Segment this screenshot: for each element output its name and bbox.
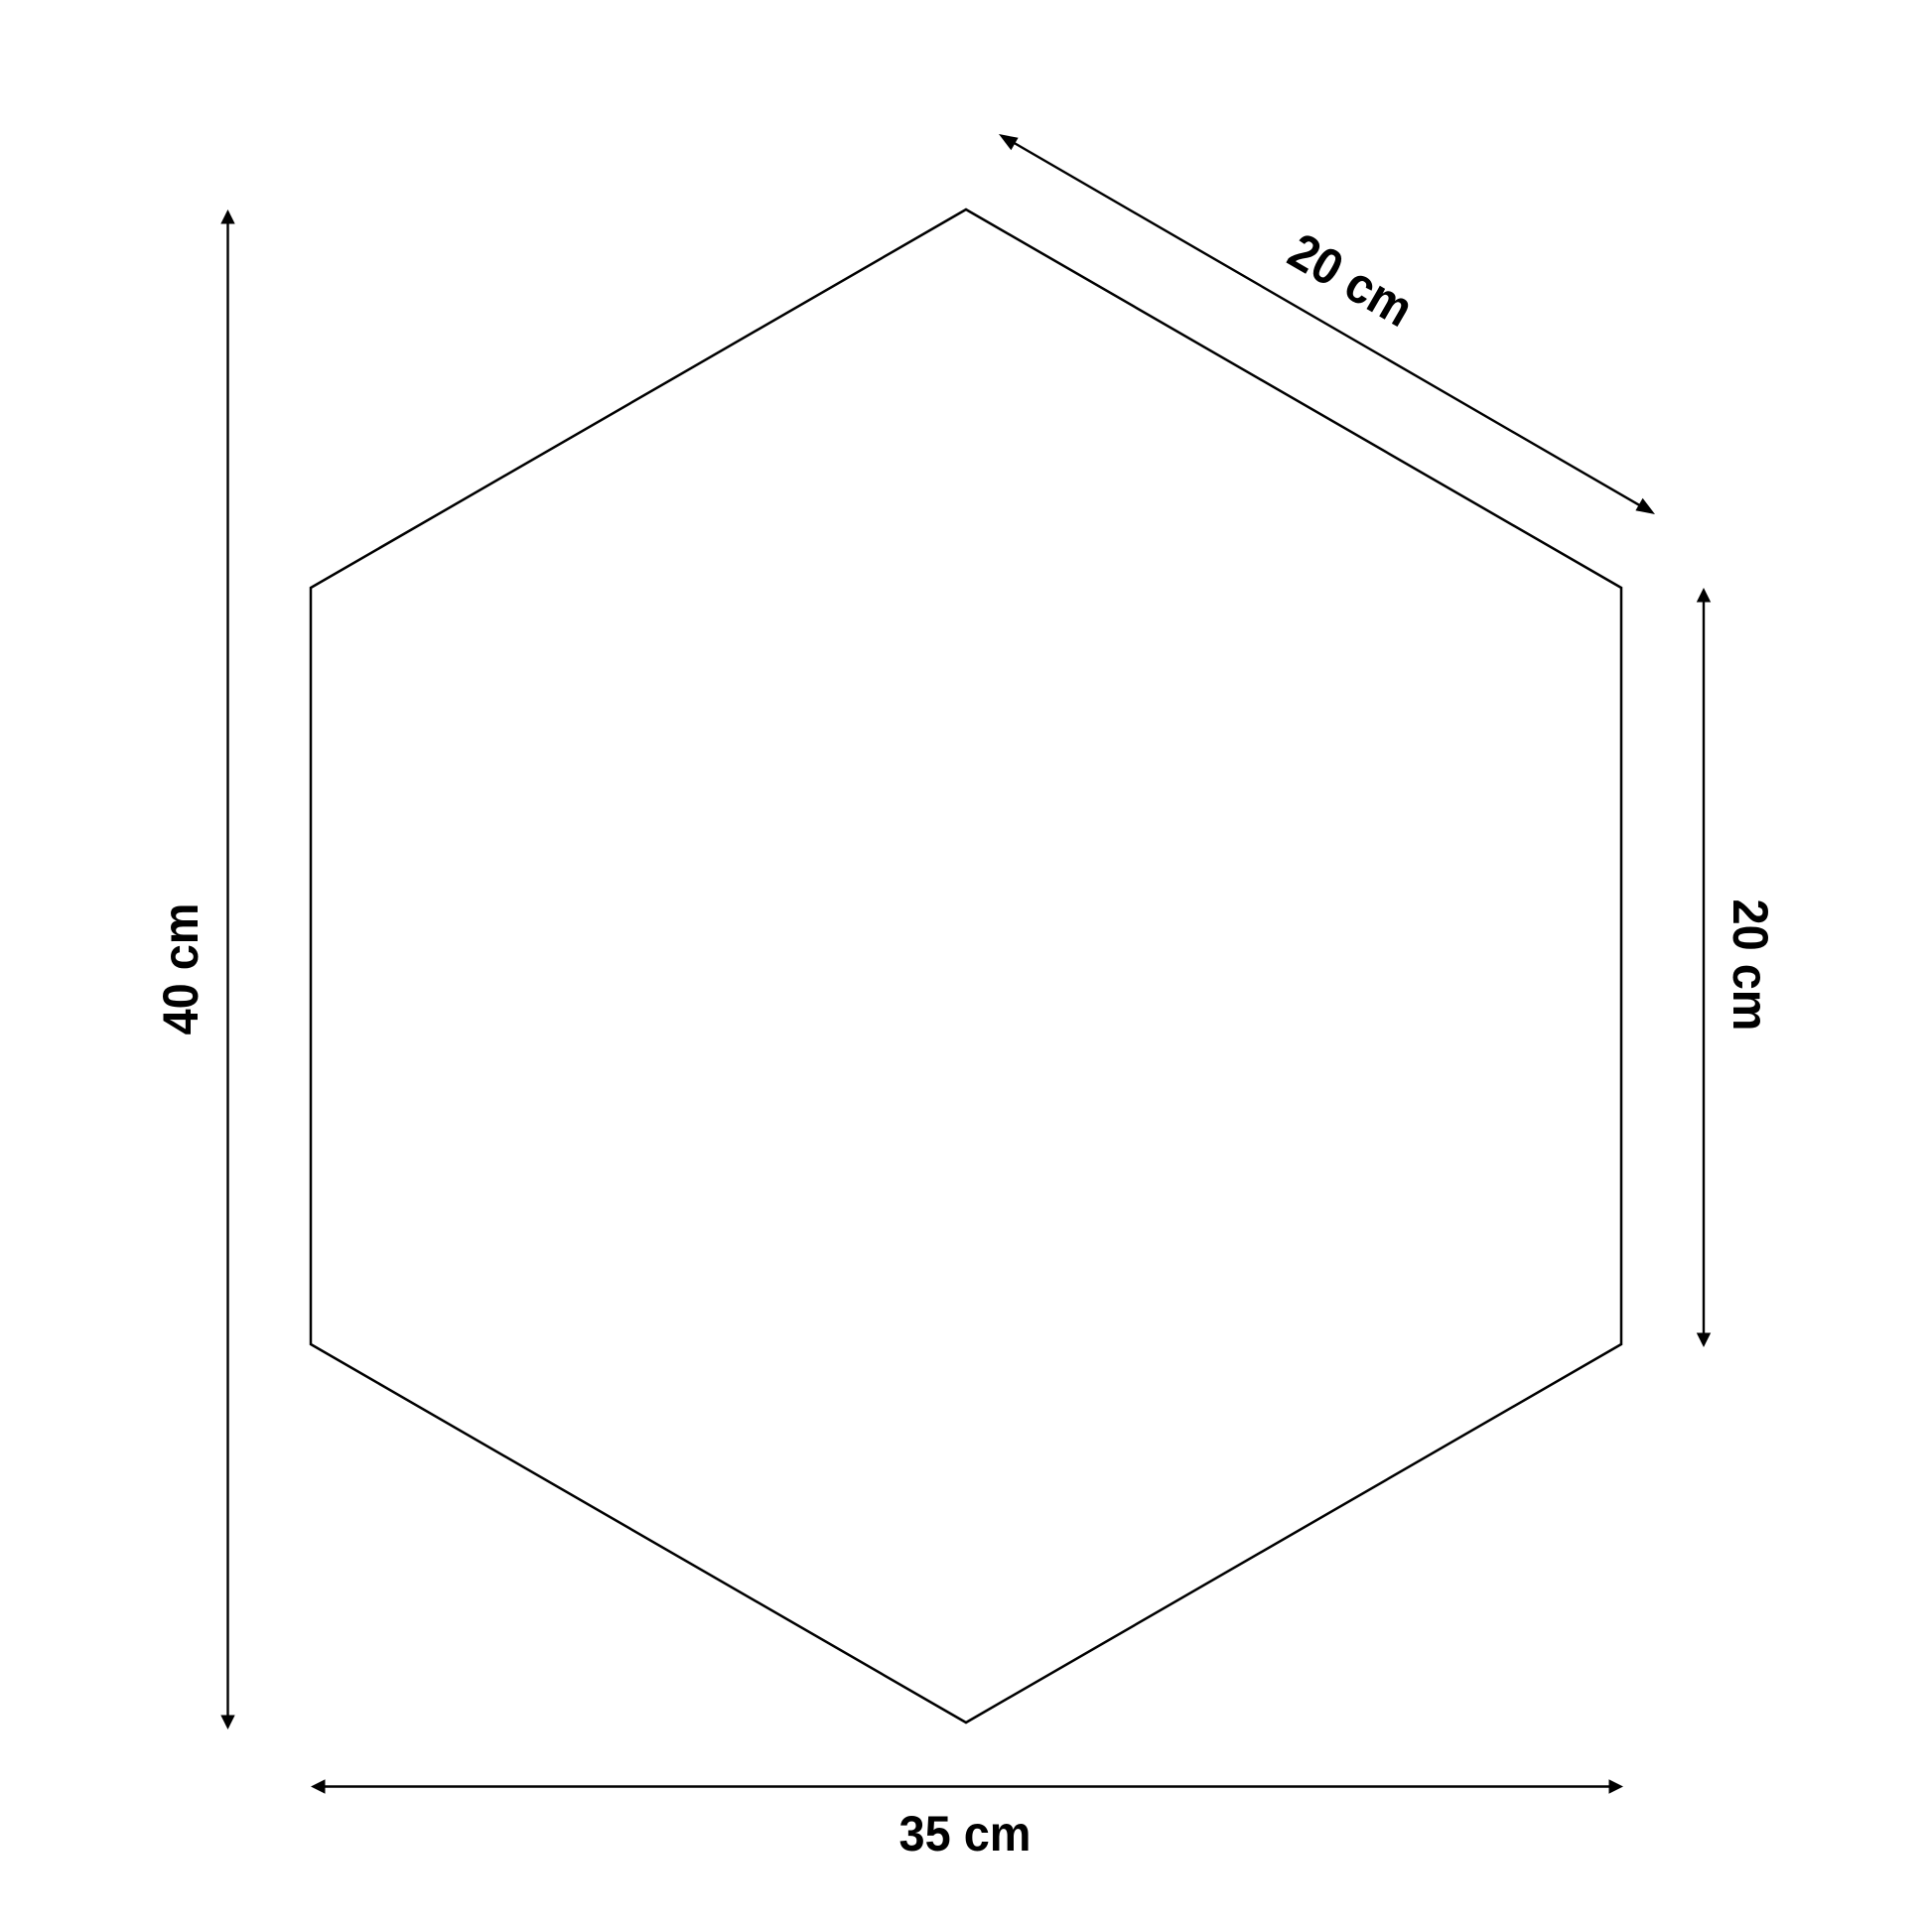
svg-text:35 cm: 35 cm xyxy=(899,1806,1032,1862)
svg-text:40 cm: 40 cm xyxy=(153,903,208,1035)
svg-text:20 cm: 20 cm xyxy=(1723,899,1778,1032)
